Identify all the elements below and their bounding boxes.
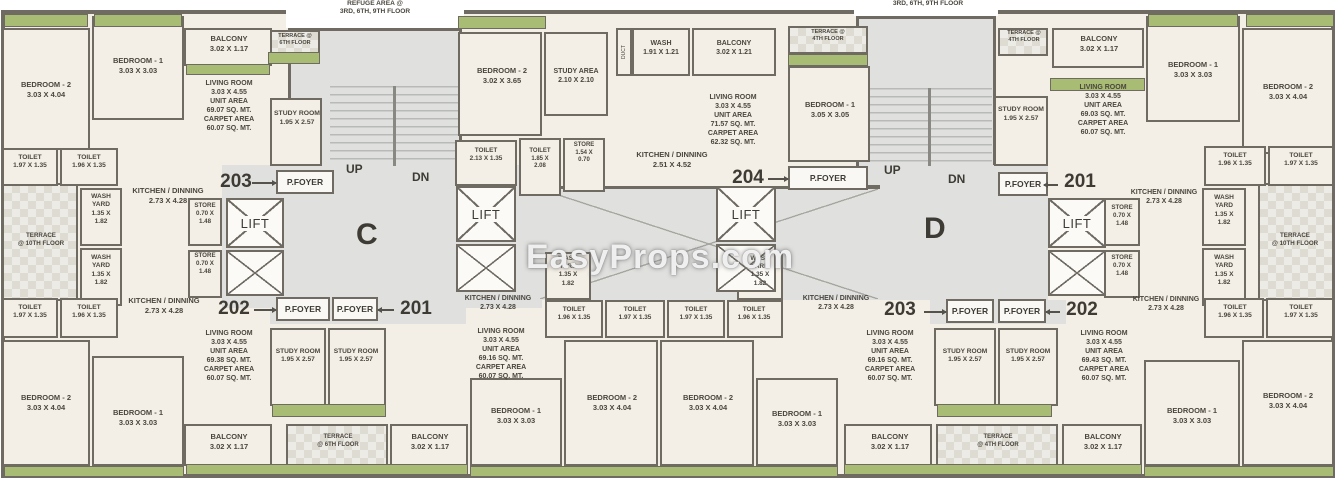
- label-toilet: TOILET 1.97 X 1.35: [4, 304, 56, 321]
- unit-number-203: 203: [214, 171, 258, 193]
- foyer-203: P.FOYER: [276, 170, 334, 194]
- label-bedroom1: BEDROOM - 1 3.03 X 3.03: [758, 409, 836, 428]
- wing-c-label: C: [356, 218, 378, 252]
- green-strip: [1148, 14, 1238, 27]
- foyer-201-left: P.FOYER: [332, 297, 378, 321]
- label-toilet: TOILET 1.96 X 1.35: [62, 304, 116, 321]
- unit-number-201: 201: [1058, 171, 1102, 193]
- lift-shaft: [1048, 250, 1106, 296]
- green-strip: [4, 14, 88, 27]
- label-study: STUDY ROOM 1.95 X 2.57: [271, 348, 325, 365]
- green-strip: [1144, 466, 1334, 477]
- foyer-204: P.FOYER: [788, 166, 868, 190]
- label-kitchen: KITCHEN / DINNING 2.73 X 4.28: [790, 295, 882, 313]
- foyer-202-right: P.FOYER: [998, 299, 1046, 323]
- stair-divider-right: [928, 88, 931, 166]
- green-strip: [844, 464, 1142, 475]
- label-wash-yard: WASH YARD 1.35 X 1.82: [82, 193, 120, 227]
- arrow: [1044, 184, 1058, 186]
- green-strip: [94, 14, 182, 27]
- arrow: [924, 311, 946, 313]
- label-toilet: TOILET 1.96 X 1.35: [1206, 152, 1264, 169]
- room-study: [998, 328, 1058, 406]
- label-toilet: TOILET 1.97 X 1.35: [4, 154, 56, 171]
- refuge-note-left: REFUGE AREA @ 3RD, 6TH, 9TH FLOOR: [290, 0, 460, 17]
- floor-plan: DUCT LIFT LIFT LIFT LIFT P.FOYER P.FOYER…: [0, 0, 1336, 483]
- label-terrace: TERRACE @ 6TH FLOOR: [270, 33, 320, 47]
- label-study-area: STUDY AREA 2.10 X 2.10: [546, 68, 606, 86]
- label-living: LIVING ROOM 3.03 X 4.55 UNIT AREA 69.38 …: [188, 330, 270, 384]
- stairs-up-label: UP: [346, 162, 363, 176]
- label-bedroom2: BEDROOM - 2 3.03 X 4.04: [4, 393, 88, 412]
- label-balcony: BALCONY 3.02 X 1.17: [188, 432, 270, 451]
- room-study: [934, 328, 996, 406]
- label-terrace: TERRACE @ 10TH FLOOR: [1260, 232, 1330, 248]
- label-bedroom2: BEDROOM - 2 3.03 X 4.04: [568, 393, 656, 412]
- room-study: [270, 328, 326, 406]
- unit-number-204: 204: [726, 167, 770, 189]
- label-wash-yard: WASH YARD 1.35 X 1.82: [1204, 254, 1244, 288]
- label-toilet: TOILET 1.85 X 2.08: [520, 148, 560, 171]
- unit-number-202: 202: [212, 298, 256, 320]
- label-bedroom2: BEDROOM - 2 3.03 X 4.04: [664, 393, 752, 412]
- label-bedroom1: BEDROOM - 1 3.03 X 3.03: [96, 56, 180, 75]
- label-bedroom1: BEDROOM - 1 3.05 X 3.05: [792, 100, 868, 119]
- label-living: LIVING ROOM 3.03 X 4.55 UNIT AREA 71.57 …: [690, 94, 776, 148]
- arrow: [768, 178, 788, 180]
- lift: LIFT: [716, 186, 776, 242]
- label-living: LIVING ROOM 3.03 X 4.55 UNIT AREA 69.43 …: [1060, 330, 1148, 384]
- foyer-202-left: P.FOYER: [276, 297, 330, 321]
- green-strip: [788, 54, 868, 66]
- green-strip: [272, 404, 386, 417]
- label-store: STORE 0.70 X 1.48: [189, 252, 221, 276]
- unit-number-202: 202: [1060, 299, 1104, 321]
- green-strip: [470, 466, 838, 477]
- lift-label: LIFT: [238, 216, 273, 231]
- label-terrace: TERRACE @ 6TH FLOOR: [290, 434, 386, 449]
- label-balcony: BALCONY 3.02 X 1.17: [1064, 432, 1142, 451]
- green-strip: [186, 464, 468, 475]
- label-toilet: TOILET 1.96 X 1.35: [1206, 304, 1264, 321]
- label-toilet: TOILET 1.97 X 1.35: [607, 306, 663, 322]
- arrow: [254, 309, 276, 311]
- label-balcony: BALCONY 3.02 X 1.17: [848, 432, 932, 451]
- label-balcony: BALCONY 3.02 X 1.17: [1056, 34, 1142, 53]
- label-terrace: TERRACE @ 10TH FLOOR: [6, 232, 76, 248]
- arrow: [1046, 311, 1060, 313]
- foyer-201-right: P.FOYER: [998, 172, 1048, 196]
- label-bedroom2: BEDROOM - 2 3.03 X 4.04: [1246, 82, 1330, 101]
- arrow: [378, 309, 394, 311]
- label-balcony: BALCONY 3.02 X 1.17: [188, 34, 270, 53]
- stairs-up-label: UP: [884, 163, 901, 177]
- label-kitchen: KITCHEN / DINNING 2.73 X 4.28: [118, 296, 210, 315]
- room-study: [270, 98, 322, 166]
- label-store: STORE 1.54 X 0.70: [564, 142, 604, 165]
- lift-label: LIFT: [729, 207, 764, 222]
- label-toilet: TOILET 2.13 X 1.35: [457, 147, 515, 163]
- label-kitchen: KITCHEN / DINNING 2.73 X 4.28: [1116, 296, 1216, 314]
- label-study: STUDY ROOM 1.95 X 2.57: [329, 348, 383, 365]
- label-study: STUDY ROOM 1.95 X 2.57: [935, 348, 995, 365]
- lift-label: LIFT: [469, 207, 504, 222]
- label-bedroom1: BEDROOM - 1 3.03 X 3.03: [96, 408, 180, 427]
- label-study: STUDY ROOM 1.95 X 2.57: [996, 106, 1046, 123]
- lift-shaft: [226, 250, 284, 296]
- green-strip: [937, 404, 1052, 417]
- label-toilet: TOILET 1.96 X 1.35: [547, 306, 601, 322]
- lift: LIFT: [456, 186, 516, 242]
- label-kitchen: KITCHEN / DINNING 2.51 X 4.52: [612, 150, 732, 169]
- label-store: STORE 0.70 X 1.48: [1105, 204, 1139, 228]
- label-wash-yard: WASH YARD 1.35 X 1.82: [82, 254, 120, 288]
- lift-label: LIFT: [1060, 216, 1095, 231]
- label-kitchen: KITCHEN / DINNING 2.73 X 4.28: [452, 295, 544, 313]
- unit-number-203: 203: [878, 299, 922, 321]
- wing-d-label: D: [924, 212, 946, 246]
- green-strip: [186, 64, 270, 75]
- label-toilet: TOILET 1.96 X 1.35: [62, 154, 116, 171]
- room-duct: DUCT: [616, 28, 632, 76]
- label-terrace: TERRACE @ 4TH FLOOR: [790, 29, 866, 43]
- label-living: LIVING ROOM 3.03 X 4.55 UNIT AREA 69.16 …: [848, 330, 932, 384]
- label-living: LIVING ROOM 3.03 X 4.55 UNIT AREA 69.03 …: [1060, 84, 1146, 138]
- green-strip: [1246, 14, 1334, 27]
- label-balcony: BALCONY 3.02 X 1.17: [392, 432, 468, 451]
- stairs-dn-label: DN: [412, 170, 429, 184]
- label-store: STORE 0.70 X 1.48: [1105, 254, 1139, 278]
- label-store: STORE 0.70 X 1.48: [189, 202, 221, 226]
- room-study: [328, 328, 386, 406]
- label-wash: WASH 1.91 X 1.21: [634, 40, 688, 58]
- label-bedroom1: BEDROOM - 1 3.03 X 3.03: [472, 406, 560, 425]
- label-toilet: TOILET 1.97 X 1.35: [1270, 304, 1332, 321]
- foyer-203-right: P.FOYER: [946, 299, 994, 323]
- green-strip: [268, 52, 320, 64]
- label-toilet: TOILET 1.97 X 1.35: [669, 306, 723, 322]
- label-bedroom2: BEDROOM - 2 3.03 X 4.04: [4, 80, 88, 99]
- stair-divider-left: [393, 86, 396, 166]
- green-strip: [458, 16, 546, 29]
- label-wash-yard: WASH YARD 1.35 X 1.82: [1204, 194, 1244, 228]
- label-bedroom1: BEDROOM - 1 3.03 X 3.03: [1150, 60, 1236, 79]
- label-toilet: TOILET 1.96 X 1.35: [727, 306, 781, 322]
- label-bedroom1: BEDROOM - 1 3.03 X 3.03: [1148, 406, 1236, 425]
- label-living: LIVING ROOM 3.03 X 4.55 UNIT AREA 69.16 …: [456, 328, 546, 382]
- label-study: STUDY ROOM 1.95 X 2.57: [272, 110, 322, 127]
- watermark: EasyProps.com: [500, 238, 820, 277]
- label-balcony: BALCONY 3.02 X 1.21: [694, 40, 774, 58]
- label-bedroom2: BEDROOM - 2 3.02 X 3.65: [462, 66, 542, 85]
- label-terrace: TERRACE @ 4TH FLOOR: [940, 434, 1056, 449]
- refuge-note-right: 3RD, 6TH, 9TH FLOOR: [860, 0, 996, 8]
- lift: LIFT: [1048, 198, 1106, 248]
- label-toilet: TOILET 1.97 X 1.35: [1270, 152, 1332, 169]
- stairs-dn-label: DN: [948, 172, 965, 186]
- lift: LIFT: [226, 198, 284, 248]
- label-living: LIVING ROOM 3.03 X 4.55 UNIT AREA 69.07 …: [188, 80, 270, 134]
- label-study: STUDY ROOM 1.95 X 2.57: [999, 348, 1057, 365]
- label-terrace: TERRACE @ 4TH FLOOR: [1000, 30, 1048, 44]
- unit-number-201: 201: [394, 298, 438, 320]
- label-bedroom2: BEDROOM - 2 3.03 X 4.04: [1246, 391, 1330, 410]
- green-strip: [4, 466, 184, 477]
